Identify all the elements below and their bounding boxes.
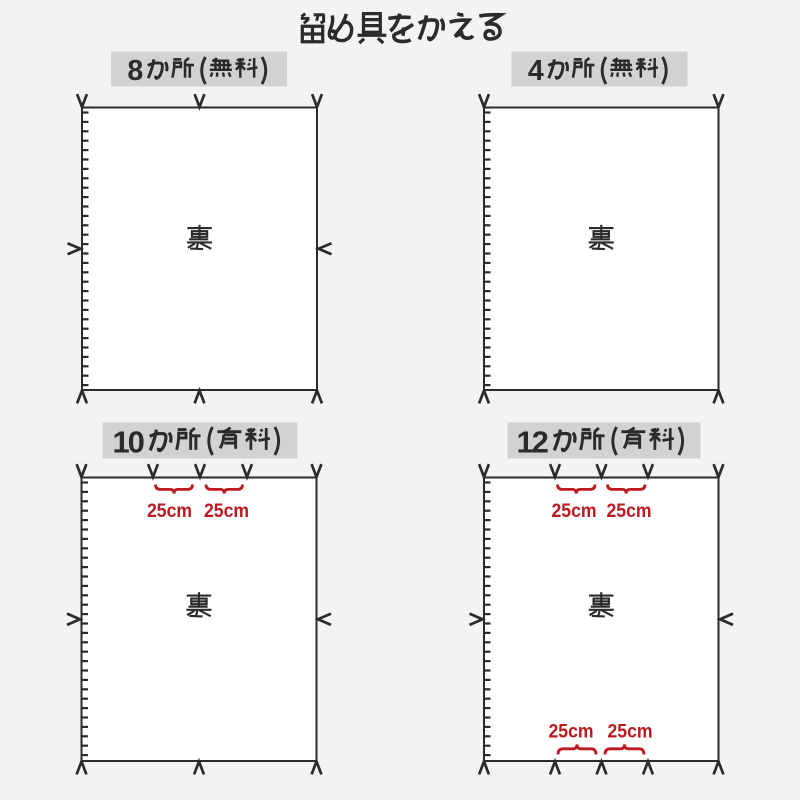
svg-text:25cm: 25cm <box>608 722 653 743</box>
svg-text:25cm: 25cm <box>204 501 249 522</box>
svg-text:4: 4 <box>528 55 544 87</box>
svg-text:2: 2 <box>532 425 549 460</box>
svg-text:25cm: 25cm <box>147 501 192 522</box>
svg-text:8: 8 <box>127 55 143 87</box>
svg-text:0: 0 <box>128 425 145 460</box>
svg-text:25cm: 25cm <box>607 501 652 522</box>
svg-text:25cm: 25cm <box>549 722 594 743</box>
svg-text:25cm: 25cm <box>552 501 597 522</box>
